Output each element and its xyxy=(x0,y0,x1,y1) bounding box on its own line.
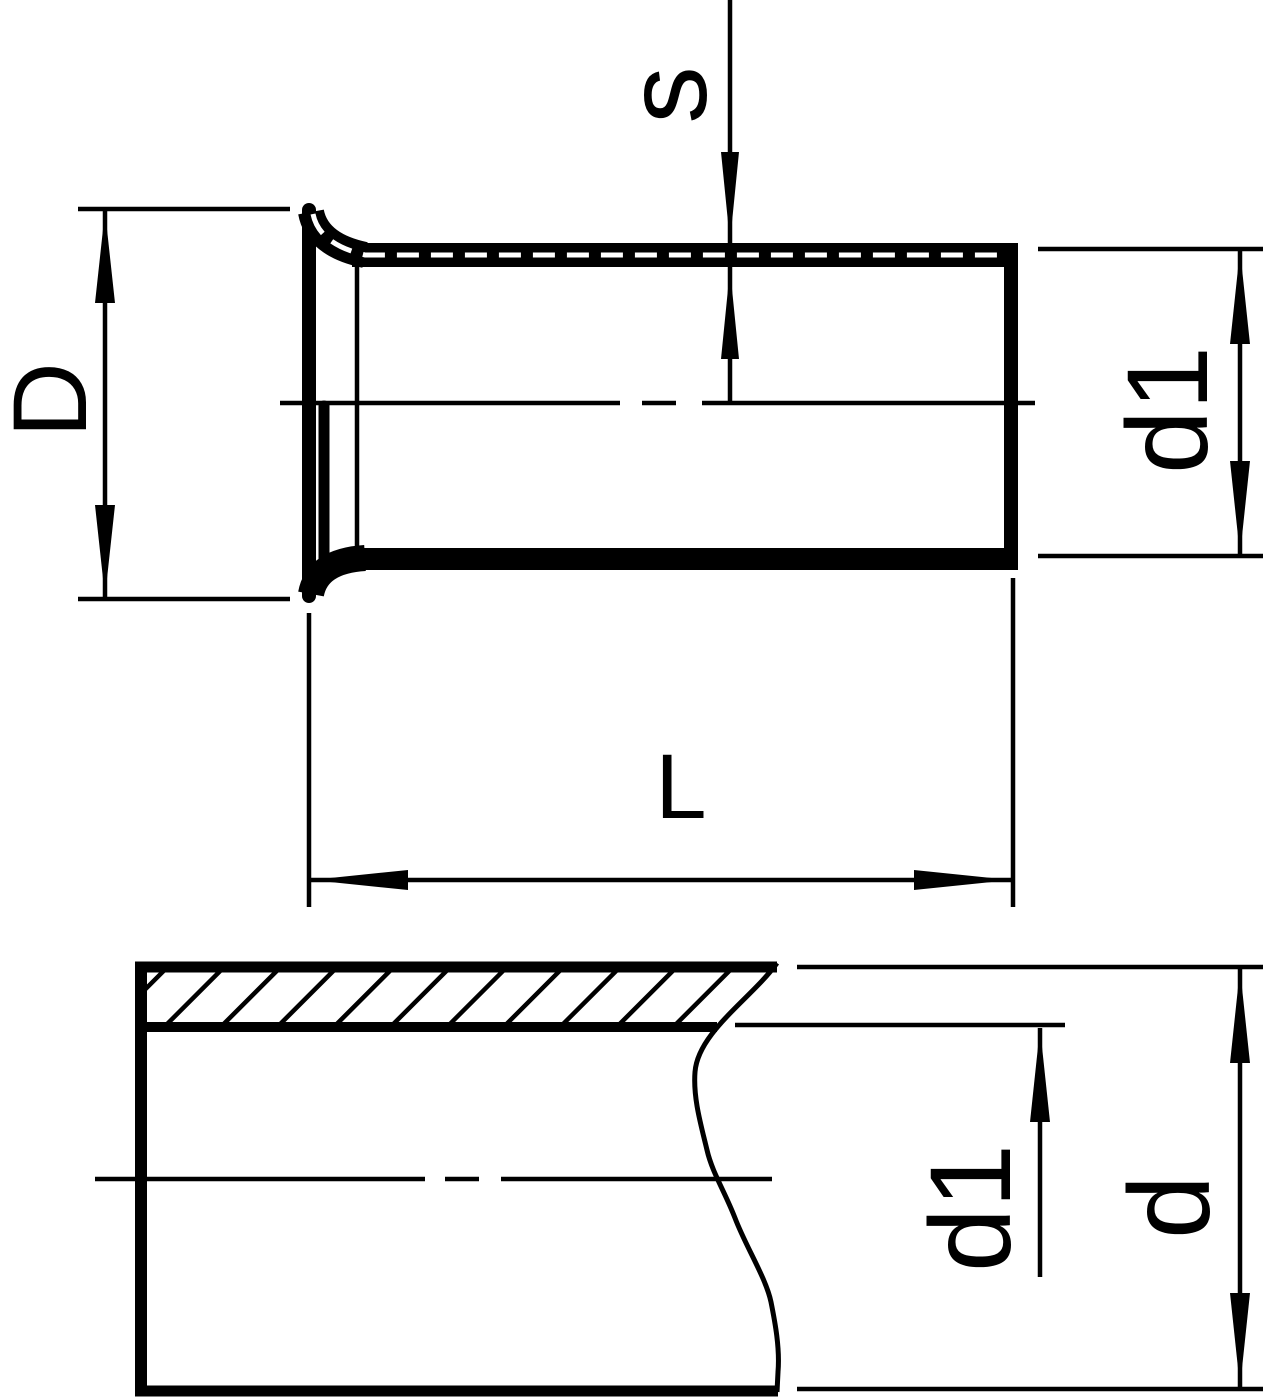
pipe-end-view xyxy=(95,962,778,1396)
arrowhead-D-down-icon xyxy=(95,505,115,597)
dimension-d1-pipe: d1 xyxy=(735,1025,1065,1277)
dimension-L: L xyxy=(309,578,1013,907)
pipe-wall-hatching xyxy=(147,972,773,1022)
arrowhead-d1-up-icon xyxy=(1230,250,1250,344)
sleeve-side-view xyxy=(280,210,1035,596)
technical-drawing: D s d1 L xyxy=(0,0,1267,1400)
arrowhead-d-up-icon xyxy=(1230,969,1250,1063)
label-d1-pipe: d1 xyxy=(907,1144,1035,1272)
arrowhead-d1-down-icon xyxy=(1230,461,1250,555)
arrowhead-d1-pipe-up-icon xyxy=(1030,1028,1050,1122)
arrowhead-d-down-icon xyxy=(1230,1293,1250,1387)
dimension-d1-sleeve: d1 xyxy=(1038,249,1263,556)
label-d: d xyxy=(1106,1175,1234,1239)
label-L: L xyxy=(655,736,706,838)
dimension-D: D xyxy=(0,209,290,599)
arrowhead-s-down-icon xyxy=(721,152,739,242)
arrowhead-s-up-icon xyxy=(721,269,739,359)
arrowhead-L-left-icon xyxy=(311,870,408,890)
label-d1-sleeve: d1 xyxy=(1104,346,1232,474)
arrowhead-L-right-icon xyxy=(914,870,1011,890)
tube-bottom-wall xyxy=(352,548,1018,570)
tube-end-face xyxy=(1004,243,1018,570)
drawing-canvas: D s d1 L xyxy=(0,0,1267,1400)
dimension-s: s xyxy=(603,0,739,405)
arrowhead-D-up-icon xyxy=(95,211,115,303)
label-s: s xyxy=(603,66,731,124)
label-D: D xyxy=(0,362,109,438)
